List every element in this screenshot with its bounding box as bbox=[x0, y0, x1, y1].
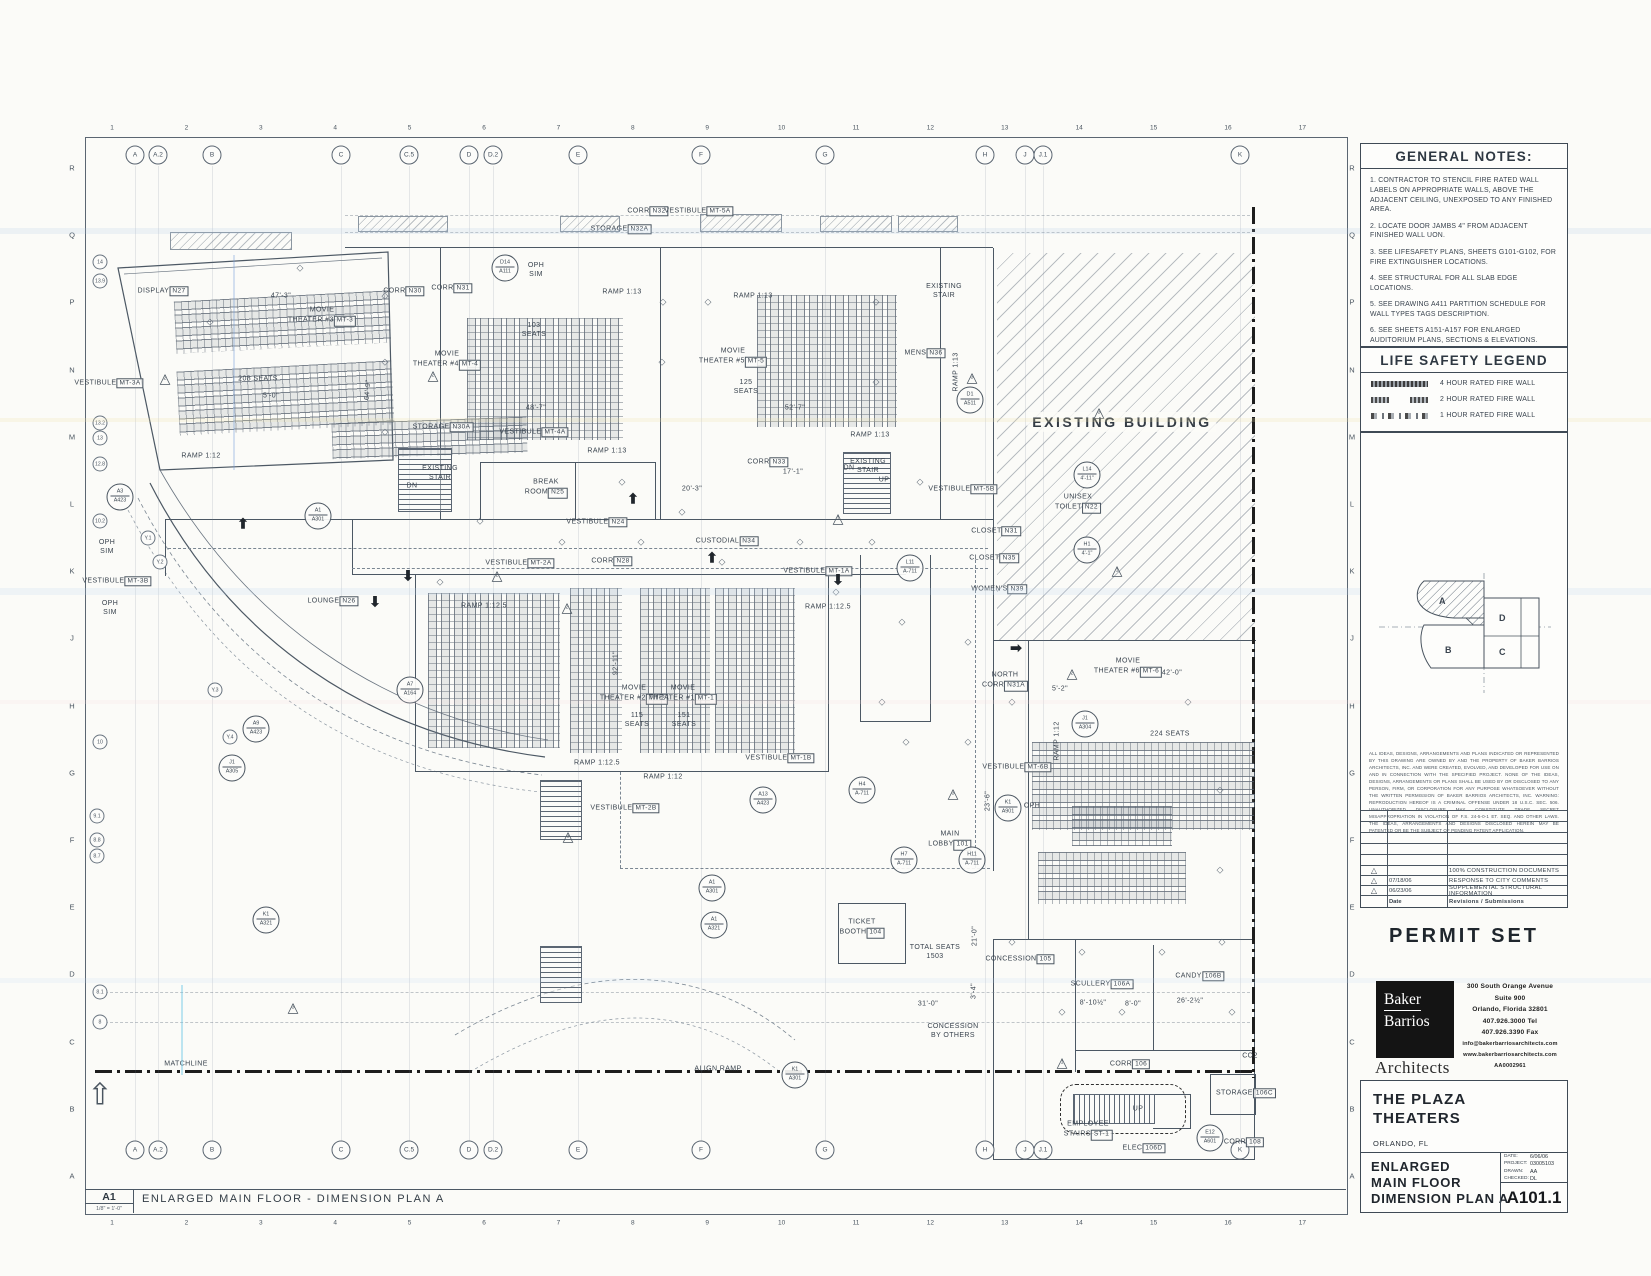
marker-sheet: A164 bbox=[401, 689, 420, 697]
grid-line bbox=[701, 166, 702, 1142]
plan-label: 5'-2" bbox=[1052, 684, 1068, 693]
room-tag: 108 bbox=[1246, 1137, 1264, 1147]
room-tag: N26 bbox=[339, 596, 358, 606]
plan-label: EMPLOYEE STAIRSST-1 bbox=[1064, 1120, 1113, 1141]
delta-number: 3 bbox=[951, 792, 954, 798]
plan-label-text: OPH bbox=[1024, 802, 1040, 809]
title-block-field: PROJECT:03005103 bbox=[1501, 1160, 1567, 1168]
ruler-number: 10 bbox=[778, 1220, 785, 1227]
wall-type-tag-icon: ◇ bbox=[382, 427, 389, 438]
project-name: THE PLAZA THEATERS bbox=[1373, 1091, 1466, 1129]
grid-bubble: H bbox=[976, 1141, 995, 1160]
room-tag: MT-2A bbox=[527, 558, 554, 568]
plan-label-text: RAMP 1:13 bbox=[952, 352, 959, 391]
plan-label-text: DISPLAY bbox=[138, 287, 170, 294]
plan-label-text: 92'-11" bbox=[612, 651, 619, 675]
firm-logo: Baker Barrios bbox=[1376, 981, 1454, 1058]
plan-label: 224 SEATS bbox=[1150, 729, 1190, 738]
legend-row: 1 HOUR RATED FIRE WALL bbox=[1371, 412, 1557, 419]
revision-description: 100% CONSTRUCTION DOCUMENTS bbox=[1449, 868, 1559, 874]
marker-sheet: A301 bbox=[309, 515, 328, 523]
keyplan-quad-a: A bbox=[1439, 596, 1446, 606]
grid-letter: R bbox=[69, 164, 74, 173]
firm-address-line: Suite 900 bbox=[1452, 995, 1568, 1002]
section-reference-marker: J1A305 bbox=[219, 755, 246, 782]
plan-label: EXISTING BUILDING bbox=[1027, 412, 1216, 432]
titlebar-cell-divider bbox=[133, 1189, 134, 1213]
plan-label-text: UP bbox=[1133, 1105, 1144, 1112]
plan-label-text: 3'-4" bbox=[970, 983, 977, 999]
ruler-number: 12 bbox=[927, 125, 934, 132]
title-block-field: DATE:6/06/06 bbox=[1501, 1152, 1567, 1160]
grid-bubble: F bbox=[692, 146, 711, 165]
marker-id: A1 bbox=[700, 876, 725, 886]
legend-swatch-icon bbox=[1371, 413, 1428, 419]
light-dash-line bbox=[345, 232, 1250, 233]
revision-empty-row bbox=[1361, 810, 1567, 821]
firm-logo-line3: Architects bbox=[1375, 1058, 1450, 1078]
plan-label: SCULLERY106A bbox=[1071, 978, 1134, 989]
roof-vent-hatch bbox=[820, 216, 892, 232]
seating-block bbox=[1072, 806, 1172, 846]
plan-label-text: 8'-0" bbox=[1125, 1000, 1141, 1007]
delta-number: 2 bbox=[1070, 672, 1073, 678]
plan-label: TICKET BOOTH104 bbox=[840, 918, 885, 939]
revision-description: SUPPLEMENTAL STRUCTURAL INFORMATION bbox=[1449, 885, 1567, 897]
ruler-number: 8 bbox=[631, 1220, 635, 1227]
room-tag: N31A bbox=[1004, 681, 1028, 691]
field-label: PROJECT: bbox=[1504, 1161, 1530, 1167]
room-tag: 106C bbox=[1253, 1088, 1276, 1098]
plan-label: RAMP 1:12 bbox=[181, 451, 220, 460]
plan-label: STORAGEN30A bbox=[413, 421, 474, 432]
grid-bubble: C.5 bbox=[400, 1141, 419, 1160]
marker-sheet: A111 bbox=[496, 267, 515, 275]
grid-letter: E bbox=[69, 903, 74, 912]
plan-label-text: CUSTODIAL bbox=[696, 537, 740, 544]
plan-label-text: EXISTING STAIR bbox=[422, 465, 458, 481]
wall-type-tag-icon: ◇ bbox=[873, 377, 880, 388]
revision-delta-marker: △3 bbox=[948, 786, 959, 800]
wall-segment bbox=[1190, 1094, 1191, 1128]
grid-bubble: E bbox=[569, 1141, 588, 1160]
plan-label: VESTIBULEMT-6B bbox=[982, 761, 1051, 772]
seating-block bbox=[1038, 852, 1186, 904]
grid-bubble: J.1 bbox=[1034, 146, 1053, 165]
plan-label-text: MOVIE THEATER #1 bbox=[649, 685, 695, 702]
room-tag: N22 bbox=[1082, 503, 1101, 513]
ruler-number: 7 bbox=[557, 1220, 561, 1227]
grid-bubble: H bbox=[976, 146, 995, 165]
grid-letter: B bbox=[1349, 1104, 1354, 1113]
plan-label: UP bbox=[879, 475, 890, 484]
revision-date-label: Date bbox=[1387, 899, 1449, 905]
drawing-sheet: DISPLAYN2747'-3"MOVIE THEATER #3MT-3208 … bbox=[0, 0, 1651, 1276]
general-note: 2. LOCATE DOOR JAMBS 4" FROM ADJACENT FI… bbox=[1370, 222, 1558, 242]
plan-label: VESTIBULEMT-3B bbox=[82, 575, 151, 586]
revision-description: RESPONSE TO CITY COMMENTS bbox=[1449, 878, 1548, 884]
marker-sheet: A901 bbox=[999, 807, 1018, 815]
plan-label-text: 5'-0" bbox=[263, 392, 279, 399]
field-value: 6/06/06 bbox=[1530, 1154, 1548, 1160]
plan-label: CONCESSION BY OTHERS bbox=[927, 1022, 978, 1040]
marker-id: A1 bbox=[702, 913, 727, 923]
plan-label: 48'-7" bbox=[526, 403, 546, 412]
plan-label-text: 224 SEATS bbox=[1150, 730, 1190, 737]
marker-sheet: 4'-11" bbox=[1078, 474, 1097, 482]
revision-delta-marker: △2 bbox=[428, 368, 439, 382]
general-note: 5. SEE DRAWING A411 PARTITION SCHEDULE F… bbox=[1370, 300, 1558, 320]
room-tag: N28 bbox=[614, 556, 633, 566]
room-tag: N33 bbox=[770, 457, 789, 467]
grid-line bbox=[158, 166, 159, 1142]
plan-label: 20'-3" bbox=[682, 484, 702, 493]
grid-bubble: C bbox=[332, 146, 351, 165]
plan-label: RAMP 1:12.5 bbox=[461, 601, 507, 610]
marker-id: L11 bbox=[898, 556, 923, 566]
plan-label: RAMP 1:13 bbox=[587, 446, 626, 455]
sheet-title-line1: ENLARGED bbox=[1371, 1159, 1509, 1175]
ruler-number: 3 bbox=[259, 1220, 263, 1227]
corridor-dash-line bbox=[620, 868, 990, 869]
wall-type-tag-icon: ◇ bbox=[1009, 697, 1016, 708]
plan-label: 125 SEATS bbox=[734, 378, 758, 396]
grid-letter: H bbox=[69, 701, 74, 710]
grid-letter: D bbox=[69, 970, 74, 979]
room-tag: N39 bbox=[1008, 584, 1027, 594]
plan-label: RAMP 1:13 bbox=[602, 287, 641, 296]
ruler-number: 12 bbox=[927, 1220, 934, 1227]
marker-sheet: A-711 bbox=[963, 859, 982, 867]
ruler-number: 13 bbox=[1001, 125, 1008, 132]
minor-grid-bubble: Y.4 bbox=[223, 730, 238, 745]
plan-label: VESTIBULEMT-5A bbox=[664, 205, 733, 216]
title-block-field: CHECKED:DL bbox=[1501, 1175, 1567, 1183]
minor-grid-bubble: 8.1 bbox=[93, 985, 108, 1000]
revision-empty-row bbox=[1361, 821, 1567, 832]
grid-letter: K bbox=[69, 567, 74, 576]
plan-label: STORAGEN32A bbox=[591, 223, 652, 234]
grid-letter: P bbox=[69, 298, 74, 307]
plan-label: CUSTODIALN34 bbox=[696, 535, 759, 546]
plan-label: EXISTING STAIR bbox=[850, 457, 886, 475]
marker-id: A1 bbox=[306, 504, 331, 514]
plan-label-text: 64'-9" bbox=[364, 380, 373, 401]
plan-label: CANDY106B bbox=[1175, 970, 1224, 981]
wall-segment bbox=[1210, 1074, 1256, 1075]
plan-label-text: VESTIBULE bbox=[499, 428, 541, 435]
wall-segment bbox=[993, 940, 994, 1160]
plan-label-text: 42'-0" bbox=[1162, 669, 1182, 676]
room-tag: 106D bbox=[1142, 1143, 1165, 1153]
ruler-number: 2 bbox=[185, 125, 189, 132]
ruler-number: 4 bbox=[333, 125, 337, 132]
wall-type-tag-icon: ◇ bbox=[899, 617, 906, 628]
detail-scale: 1/8" = 1'-0" bbox=[96, 1206, 122, 1212]
minor-grid-bubble: 10 bbox=[93, 735, 108, 750]
plan-label: ELEC106D bbox=[1122, 1142, 1165, 1153]
plan-label: 8'-10½" bbox=[1080, 998, 1106, 1007]
grid-bubble: J.1 bbox=[1034, 1141, 1053, 1160]
light-dash-line bbox=[95, 1022, 1255, 1023]
plan-label-text: 17'-1" bbox=[783, 468, 803, 475]
plan-label-text: 47'-3" bbox=[271, 292, 291, 299]
wall-type-tag-icon: ◇ bbox=[207, 317, 214, 328]
firm-address-line: www.bakerbarriosarchitects.com bbox=[1452, 1052, 1568, 1058]
minor-grid-bubble: 14 bbox=[93, 255, 108, 270]
matchline-line bbox=[95, 1070, 1255, 1073]
ruler-number: 14 bbox=[1076, 125, 1083, 132]
plan-label-text: RAMP 1:12.5 bbox=[461, 602, 507, 609]
ramp-direction-arrow-icon: ⬆ bbox=[237, 516, 249, 533]
room-tag: MT-1 bbox=[695, 694, 717, 704]
wall-type-tag-icon: ◇ bbox=[719, 557, 726, 568]
grid-bubble: B bbox=[203, 1141, 222, 1160]
plan-label-text: EXISTING STAIR bbox=[850, 458, 886, 474]
ruler-number: 9 bbox=[705, 1220, 709, 1227]
ruler-number: 1 bbox=[110, 1220, 114, 1227]
marker-sheet: A321 bbox=[705, 924, 724, 932]
ruler-number: 15 bbox=[1150, 1220, 1157, 1227]
room-tag: N34 bbox=[739, 536, 758, 546]
plan-label: DISPLAYN27 bbox=[138, 285, 189, 296]
revision-delta-marker: △3 bbox=[288, 1000, 299, 1014]
section-reference-marker: H4A-711 bbox=[849, 777, 876, 804]
grid-letter: F bbox=[1350, 836, 1355, 845]
plan-label: 17'-1" bbox=[783, 467, 803, 476]
plan-label-text: MENS bbox=[905, 349, 927, 356]
plan-label: VESTIBULEMT-2B bbox=[590, 802, 659, 813]
grid-line bbox=[1240, 166, 1241, 1142]
ruler-number: 6 bbox=[482, 1220, 486, 1227]
section-reference-marker: A13A423 bbox=[750, 787, 777, 814]
revision-date: 07/18/06 bbox=[1387, 878, 1449, 884]
stair bbox=[540, 780, 582, 840]
plan-label-text: CLOSET bbox=[971, 527, 1001, 534]
ramp-direction-arrow-icon: ⬇ bbox=[402, 568, 414, 585]
plan-label-text: CORR bbox=[627, 207, 649, 214]
section-reference-marker: D14A111 bbox=[492, 255, 519, 282]
plan-label-text: 115 SEATS bbox=[625, 712, 649, 728]
firm-address-line: 407.926.3000 Tel bbox=[1452, 1018, 1568, 1025]
wall-segment bbox=[860, 555, 861, 722]
plan-label: TOTAL SEATS 1503 bbox=[910, 943, 960, 961]
plan-label: 208 SEATS bbox=[238, 374, 278, 383]
revision-row: △07/18/06RESPONSE TO CITY COMMENTS bbox=[1361, 875, 1567, 885]
plan-label: 42'-0" bbox=[1162, 668, 1182, 677]
wall-segment bbox=[345, 247, 993, 248]
ruler-number: 2 bbox=[185, 1220, 189, 1227]
plan-label: OPH bbox=[1024, 801, 1040, 810]
plan-label: 151 SEATS bbox=[672, 711, 696, 729]
plan-label-text: WOMEN'S bbox=[971, 585, 1007, 592]
room-tag: N25 bbox=[548, 488, 567, 498]
ruler-number: 10 bbox=[778, 125, 785, 132]
plan-label-text: ALIGN RAMP bbox=[694, 1065, 741, 1072]
plan-label: RAMP 1:12 bbox=[1052, 721, 1061, 760]
general-note: 1. CONTRACTOR TO STENCIL FIRE RATED WALL… bbox=[1370, 176, 1558, 215]
delta-number: 1 bbox=[1060, 1061, 1063, 1067]
grid-letter: A bbox=[1349, 1172, 1354, 1181]
marker-id: K1 bbox=[783, 1063, 808, 1073]
plan-label-text: DN bbox=[844, 464, 855, 471]
section-reference-marker: K1A901 bbox=[995, 795, 1022, 822]
grid-letter: G bbox=[69, 768, 75, 777]
grid-bubble: D.2 bbox=[484, 1141, 503, 1160]
plan-label-text: CORR bbox=[591, 557, 613, 564]
room-tag: N36 bbox=[926, 348, 945, 358]
ruler-number: 14 bbox=[1076, 1220, 1083, 1227]
plan-label-text: RAMP 1:13 bbox=[733, 292, 772, 299]
grid-bubble: J bbox=[1016, 146, 1035, 165]
plan-label-text: RAMP 1:12.5 bbox=[574, 759, 620, 766]
plan-label: MOVIE THEATER #4MT-4 bbox=[413, 350, 481, 371]
sheet-title-line2: MAIN FLOOR bbox=[1371, 1175, 1509, 1191]
firm-address: 300 South Orange AvenueSuite 900Orlando,… bbox=[1452, 983, 1568, 1074]
plan-label: RAMP 1:13 bbox=[951, 352, 960, 391]
grid-bubble: B bbox=[203, 146, 222, 165]
section-reference-marker: A1A301 bbox=[305, 503, 332, 530]
plan-label-text: VESTIBULE bbox=[664, 207, 706, 214]
room-tag: ST-1 bbox=[1091, 1130, 1112, 1140]
legend-row: 2 HOUR RATED FIRE WALL bbox=[1371, 396, 1557, 403]
plan-label: DN bbox=[407, 481, 418, 490]
wall-segment bbox=[480, 462, 481, 519]
plan-label: VESTIBULEMT-1B bbox=[745, 752, 814, 763]
wall-segment bbox=[838, 903, 906, 904]
grid-bubble: D bbox=[460, 1141, 479, 1160]
ruler-number: 9 bbox=[705, 125, 709, 132]
plan-label-text: 31'-0" bbox=[918, 1000, 938, 1007]
revision-footer-row: DateRevisions / Submissions bbox=[1361, 895, 1567, 907]
room-tag: 106A bbox=[1111, 979, 1134, 989]
section-reference-marker: A1A301 bbox=[699, 875, 726, 902]
marker-id: E12 bbox=[1198, 1126, 1223, 1136]
grid-letter: Q bbox=[69, 231, 75, 240]
section-reference-marker: D1A511 bbox=[957, 387, 984, 414]
grid-letter: G bbox=[1349, 768, 1355, 777]
plan-label-text: VESTIBULE bbox=[590, 804, 632, 811]
marker-sheet: A-711 bbox=[895, 859, 914, 867]
wall-segment bbox=[993, 248, 994, 641]
field-label: DRAWN: bbox=[1504, 1169, 1530, 1175]
wall-type-tag-icon: ◇ bbox=[559, 537, 566, 548]
seating-block bbox=[715, 588, 795, 753]
key-plan: A B C D bbox=[1379, 573, 1551, 693]
plan-label-text: TOTAL SEATS 1503 bbox=[910, 944, 960, 960]
plan-label: NORTH CORRN31A bbox=[982, 671, 1028, 692]
plan-label-text: 151 SEATS bbox=[672, 712, 696, 728]
plan-label: 115 SEATS bbox=[625, 711, 649, 729]
plan-label-text: 48'-7" bbox=[526, 404, 546, 411]
firm-address-line: 407.926.3390 Fax bbox=[1452, 1029, 1568, 1036]
ruler-number: 11 bbox=[853, 1220, 860, 1227]
marker-sheet: 4'-1" bbox=[1078, 549, 1097, 557]
ruler-number: 11 bbox=[853, 125, 860, 132]
corridor-dash-line bbox=[620, 772, 621, 868]
grid-line bbox=[825, 166, 826, 1142]
plan-label-text: STORAGE bbox=[1216, 1089, 1253, 1096]
light-dash-line bbox=[95, 992, 1255, 993]
plan-label-text: 103 SEATS bbox=[522, 322, 546, 338]
plan-label-text: VESTIBULE bbox=[745, 754, 787, 761]
wall-type-tag-icon: ◇ bbox=[917, 477, 924, 488]
minor-grid-bubble: Y.2 bbox=[153, 555, 168, 570]
revision-empty-row bbox=[1361, 854, 1567, 865]
ramp-direction-arrow-icon: ⬆ bbox=[627, 491, 639, 508]
plan-label: VESTIBULEN24 bbox=[566, 516, 627, 527]
plan-label-text: OPH SIM bbox=[99, 539, 115, 555]
section-reference-marker: A3A423 bbox=[107, 484, 134, 511]
grid-line bbox=[1043, 166, 1044, 1142]
room-tag: N30 bbox=[406, 286, 425, 296]
wall-segment bbox=[1210, 1074, 1211, 1114]
legend-label: 1 HOUR RATED FIRE WALL bbox=[1440, 412, 1535, 419]
section-reference-marker: A9A423 bbox=[243, 716, 270, 743]
plan-label: MENSN36 bbox=[905, 347, 946, 358]
revision-col-divider bbox=[1447, 810, 1448, 907]
marker-sheet: A301 bbox=[786, 1074, 805, 1082]
plan-label: EXISTING STAIR bbox=[926, 282, 962, 300]
marker-sheet: A423 bbox=[247, 728, 266, 736]
grid-bubble: A.2 bbox=[149, 146, 168, 165]
section-reference-marker: A1A321 bbox=[701, 912, 728, 939]
existing-building-hatch bbox=[997, 253, 1255, 641]
grid-bubble: E bbox=[569, 146, 588, 165]
grid-line bbox=[985, 166, 986, 1142]
revision-row: △06/23/06SUPPLEMENTAL STRUCTURAL INFORMA… bbox=[1361, 885, 1567, 895]
project-name-line2: THEATERS bbox=[1373, 1110, 1466, 1129]
grid-letter: C bbox=[1349, 1037, 1354, 1046]
plan-label-text: EXISTING BUILDING bbox=[1032, 414, 1211, 430]
room-tag: MT-4A bbox=[541, 427, 568, 437]
sheet-title-line3: DIMENSION PLAN A bbox=[1371, 1191, 1509, 1207]
plan-label: 26'-2½" bbox=[1177, 996, 1203, 1005]
wall-segment bbox=[993, 640, 1256, 641]
plan-label-text: VESTIBULE bbox=[982, 763, 1024, 770]
wall-type-tag-icon: ◇ bbox=[965, 737, 972, 748]
plan-label: 21'-0" bbox=[970, 926, 979, 946]
revision-delta-icon: △ bbox=[1361, 866, 1387, 875]
revision-empty-row bbox=[1361, 843, 1567, 854]
plan-label-text: CLOSET bbox=[969, 554, 999, 561]
plan-label: CORRN31 bbox=[431, 282, 472, 293]
plan-label: CORRN30 bbox=[383, 285, 424, 296]
wall-segment bbox=[415, 771, 829, 772]
keyplan-revisions-box: A B C D ALL IDEAS, DESIGNS, ARRANGEMENTS… bbox=[1360, 432, 1568, 908]
room-tag: N24 bbox=[609, 517, 628, 527]
grid-letter: K bbox=[1349, 567, 1354, 576]
seating-block bbox=[757, 295, 897, 427]
plan-label-text: 8'-10½" bbox=[1080, 999, 1106, 1006]
minor-grid-bubble: 12.8 bbox=[93, 457, 108, 472]
legend-swatch-icon bbox=[1371, 381, 1428, 387]
room-tag: N31 bbox=[1002, 526, 1021, 536]
marker-id: K1 bbox=[996, 796, 1021, 806]
ruler-number: 8 bbox=[631, 125, 635, 132]
plan-label: UP bbox=[1133, 1104, 1144, 1113]
plan-label: 92'-11" bbox=[611, 651, 620, 675]
plan-label-text: 125 SEATS bbox=[734, 379, 758, 395]
marker-id: L14 bbox=[1075, 463, 1100, 473]
plan-label: OPH SIM bbox=[528, 261, 544, 279]
plan-label: 8'-0" bbox=[1125, 999, 1141, 1008]
ruler-number: 4 bbox=[333, 1220, 337, 1227]
room-tag: MT-3 bbox=[334, 316, 356, 326]
plan-label: CORRN28 bbox=[591, 555, 632, 566]
wall-type-tag-icon: ◇ bbox=[659, 357, 666, 368]
detail-id: A1 bbox=[102, 1191, 115, 1203]
